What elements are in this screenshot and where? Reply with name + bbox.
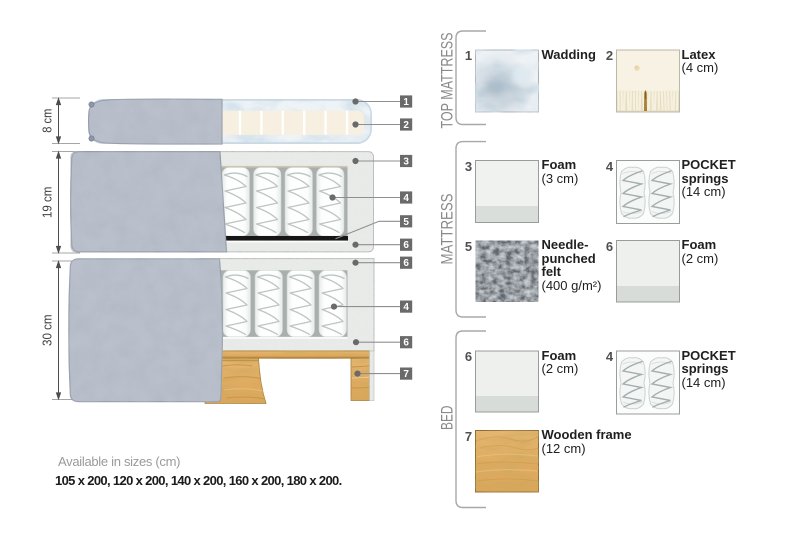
- svg-text:TOP MATTRESS: TOP MATTRESS: [439, 33, 457, 129]
- svg-text:4: 4: [403, 193, 409, 204]
- svg-text:6: 6: [403, 338, 409, 349]
- svg-text:4: 4: [403, 302, 409, 313]
- svg-text:3: 3: [403, 157, 409, 168]
- svg-text:19 cm: 19 cm: [41, 187, 55, 219]
- svg-text:5: 5: [403, 217, 409, 228]
- svg-text:2: 2: [403, 120, 409, 131]
- svg-text:6: 6: [403, 240, 409, 251]
- svg-text:BED: BED: [439, 405, 457, 430]
- svg-text:8 cm: 8 cm: [41, 109, 55, 133]
- svg-text:30 cm: 30 cm: [41, 314, 55, 346]
- svg-text:MATTRESS: MATTRESS: [439, 194, 457, 265]
- svg-text:1: 1: [403, 97, 409, 108]
- svg-text:7: 7: [403, 369, 409, 380]
- svg-text:6: 6: [403, 258, 409, 269]
